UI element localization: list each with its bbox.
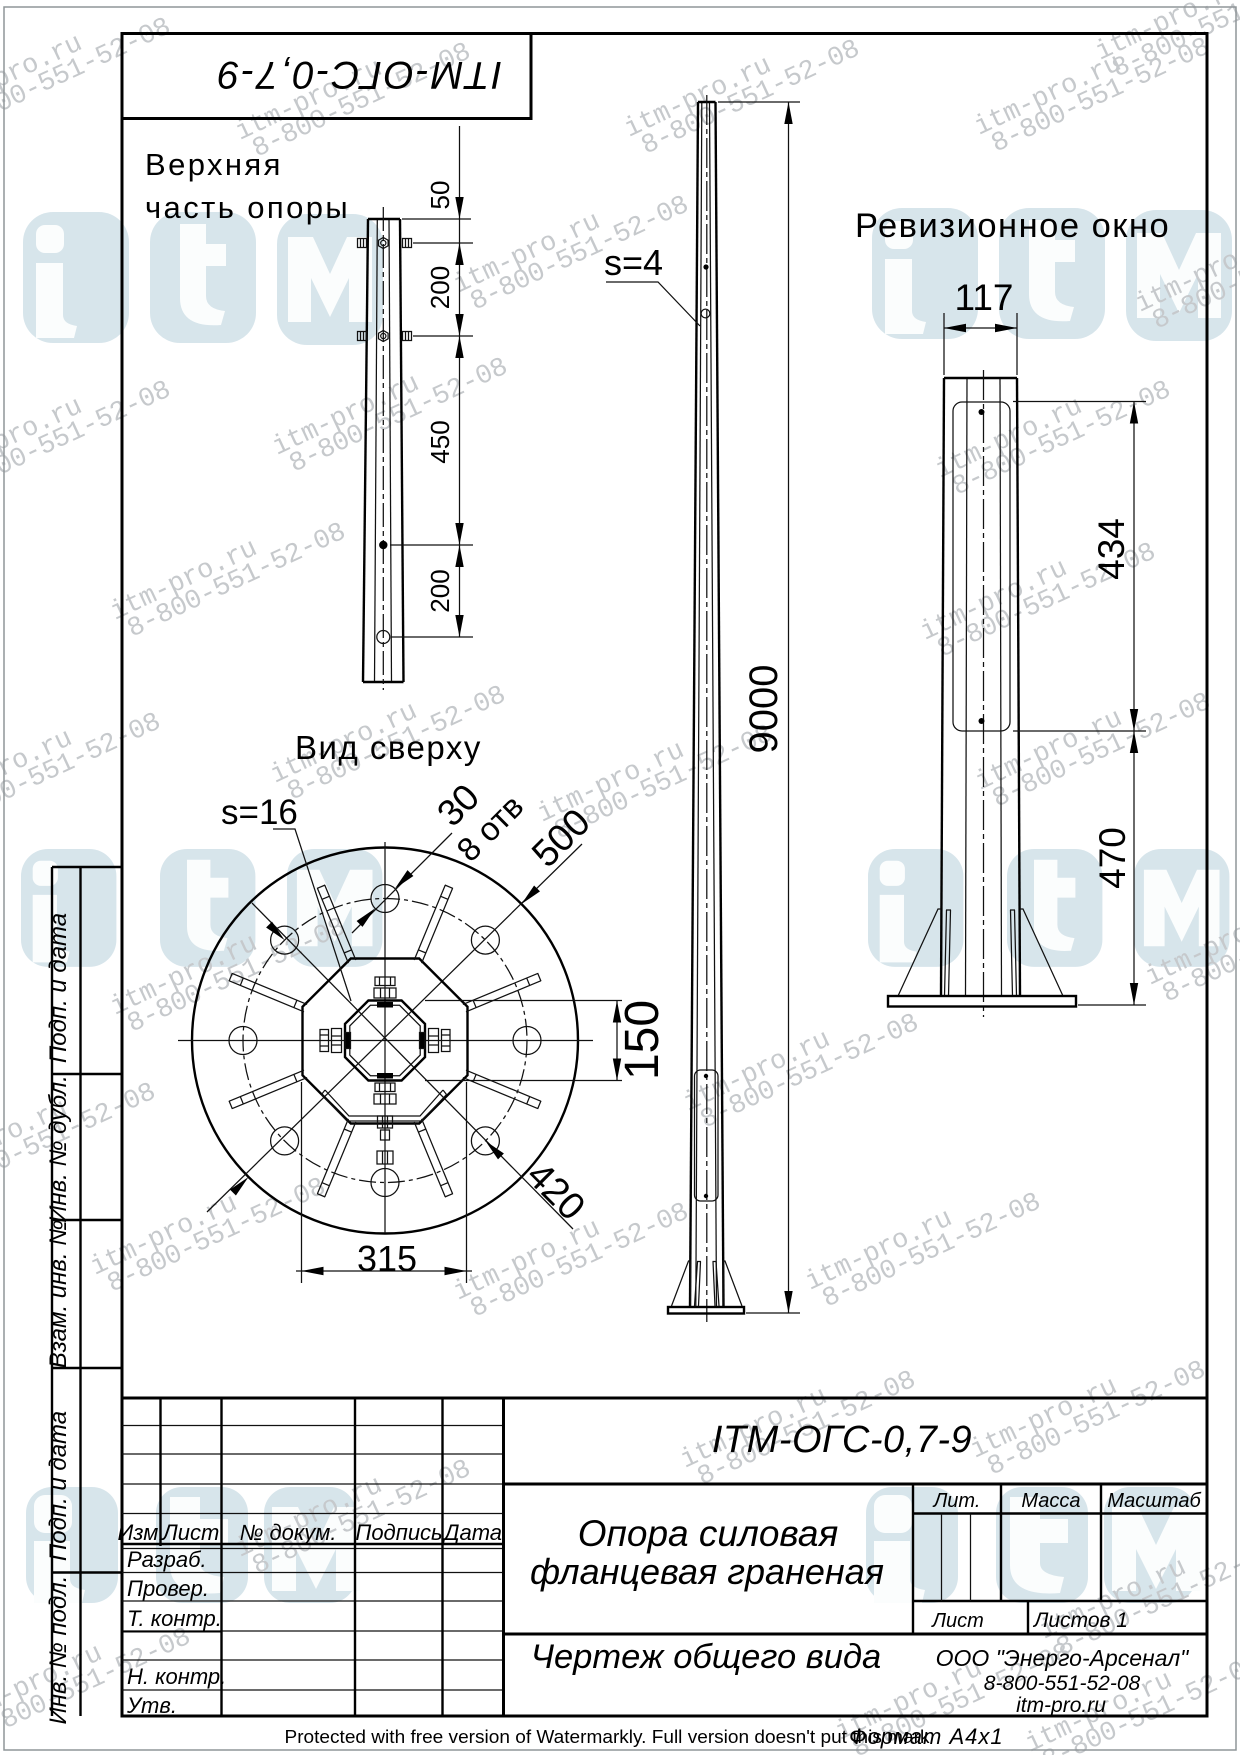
svg-text:434: 434 <box>1091 518 1132 580</box>
svg-text:Провер.: Провер. <box>127 1576 209 1601</box>
svg-text:Масса: Масса <box>1021 1490 1080 1512</box>
svg-text:Разраб.: Разраб. <box>127 1547 207 1572</box>
svg-text:Дата: Дата <box>441 1520 502 1545</box>
svg-text:Взам. инв. №: Взам. инв. № <box>45 1220 72 1368</box>
svg-text:450: 450 <box>425 420 455 463</box>
svg-text:Утв.: Утв. <box>126 1693 177 1718</box>
svg-text:470: 470 <box>1092 827 1133 889</box>
svg-text:Н. контр.: Н. контр. <box>127 1664 226 1689</box>
svg-text:фланцевая граненая: фланцевая граненая <box>530 1551 884 1592</box>
svg-text:Масштаб: Масштаб <box>1107 1490 1201 1512</box>
svg-text:Лист: Лист <box>930 1610 984 1632</box>
svg-text:9000: 9000 <box>742 665 786 754</box>
svg-text:Лит.: Лит. <box>932 1490 981 1512</box>
svg-text:s=16: s=16 <box>221 793 298 832</box>
svg-text:Листов 1: Листов 1 <box>1032 1609 1128 1632</box>
svg-text:Ревизионное окно: Ревизионное окно <box>855 207 1170 245</box>
svg-text:Protected with free version of: Protected with free version of Watermark… <box>285 1726 931 1747</box>
svg-text:200: 200 <box>425 569 455 612</box>
svg-text:Т. контр.: Т. контр. <box>127 1606 222 1631</box>
svg-text:Подп. и дата: Подп. и дата <box>45 1411 72 1561</box>
svg-text:часть опоры: часть опоры <box>145 190 350 225</box>
svg-text:8-800-551-52-08: 8-800-551-52-08 <box>984 1672 1141 1695</box>
svg-text:Инв. № подл.: Инв. № подл. <box>45 1576 72 1725</box>
svg-text:Вид сверху: Вид сверху <box>295 729 482 766</box>
svg-text:117: 117 <box>955 277 1014 318</box>
svg-text:Изм.: Изм. <box>118 1520 165 1545</box>
svg-text:150: 150 <box>616 1000 669 1080</box>
svg-text:s=4: s=4 <box>604 242 663 283</box>
svg-text:Инв. № дубл.: Инв. № дубл. <box>45 1075 72 1223</box>
svg-text:ITM-ОГС-0,7-9: ITM-ОГС-0,7-9 <box>712 1419 972 1461</box>
svg-text:№ докум.: № докум. <box>240 1520 337 1545</box>
svg-text:itm-pro.ru: itm-pro.ru <box>1016 1694 1106 1717</box>
svg-text:Подп. и дата: Подп. и дата <box>45 913 72 1063</box>
svg-text:315: 315 <box>357 1238 417 1279</box>
svg-text:Подпись: Подпись <box>355 1520 442 1545</box>
svg-text:Опора силовая: Опора силовая <box>578 1513 839 1554</box>
svg-text:50: 50 <box>425 181 455 210</box>
svg-text:ООО "Энерго-Арсенал": ООО "Энерго-Арсенал" <box>936 1645 1191 1671</box>
svg-text:ITM-ОГС-0,7-9: ITM-ОГС-0,7-9 <box>216 53 502 96</box>
svg-text:200: 200 <box>425 266 455 309</box>
svg-text:Лист: Лист <box>161 1520 220 1545</box>
svg-text:Верхняя: Верхняя <box>145 147 283 182</box>
svg-text:Чертеж общего вида: Чертеж общего вида <box>531 1638 881 1676</box>
